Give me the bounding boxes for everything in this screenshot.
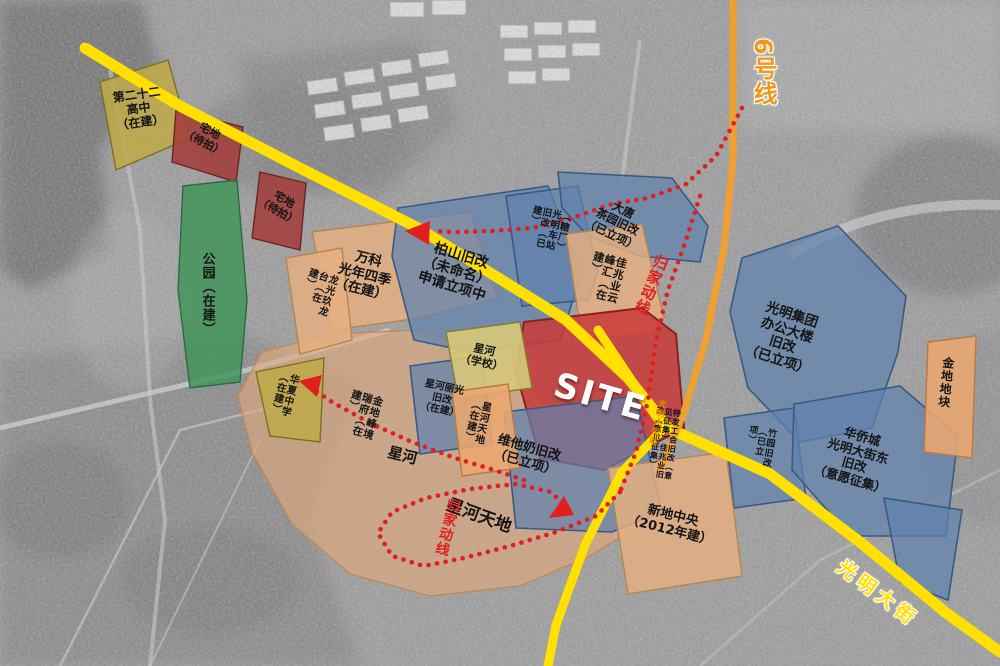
zone-park xyxy=(178,180,247,388)
zone-zhaidi-2 xyxy=(252,172,306,250)
map-canvas xyxy=(0,0,1000,666)
zone-jindi-dikuai xyxy=(924,336,976,458)
zone-xinghe-tiandi-blk xyxy=(452,384,520,476)
planning-map: 第二十二 高中 （在建）宅地 （待拍）宅地 （待拍）公园（在建）万科 光年四季 … xyxy=(0,0,1000,666)
